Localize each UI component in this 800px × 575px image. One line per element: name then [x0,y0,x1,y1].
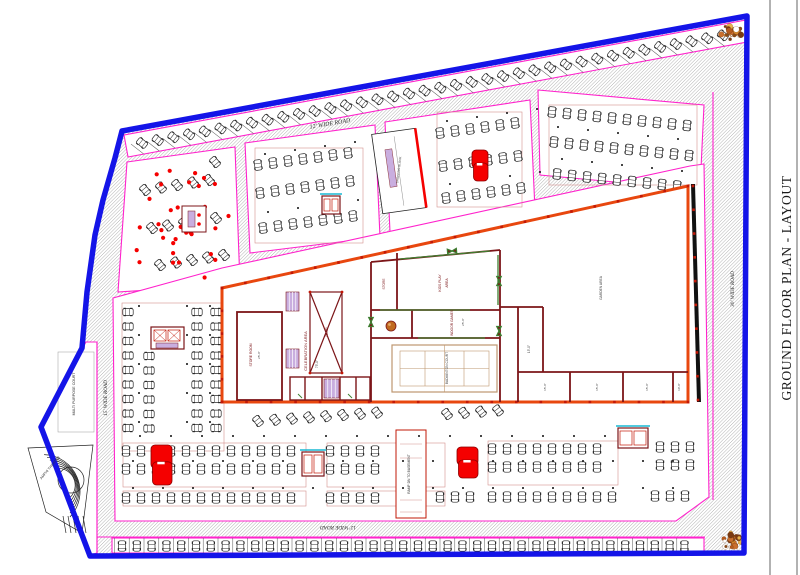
column-dot [357,199,359,201]
car-icon [480,121,490,132]
car-wheel [204,453,205,456]
car-icon [212,493,220,503]
car-wheel [673,492,674,495]
car-wheel [495,451,496,454]
car-wheel [663,461,664,464]
car-body [258,446,265,456]
car-wheel [355,548,356,551]
car-wheel [137,494,138,497]
car-body [489,541,496,551]
car-wheel [130,424,133,425]
car-wheel [540,499,541,502]
car-wheel [555,469,556,472]
car-icon [253,159,263,170]
car-wheel [288,542,289,545]
column-dot [522,487,524,489]
car-icon [152,493,160,503]
round-table-highlight [388,323,391,326]
car-icon [341,464,349,474]
car-wheel [221,548,222,551]
car-icon [123,308,133,316]
car-body [228,446,235,456]
car-wheel [570,469,571,472]
shrub-dot [138,225,142,229]
car-wheel [197,471,198,474]
car-wheel [130,359,133,360]
car-body [504,492,511,502]
car-wheel [600,493,601,496]
column-tick [694,304,697,307]
car-body [326,541,333,551]
car-wheel [451,542,452,545]
label-celebration-area: CELEBRATION AREA [303,331,308,371]
car-body [213,493,220,503]
car-body [682,491,689,501]
label-shop-dim-2: 15'-0" [595,383,599,391]
car-wheel [137,471,138,474]
car-icon [652,117,661,128]
car-icon [144,395,154,403]
car-wheel [288,548,289,551]
car-wheel [152,500,153,503]
car-icon [488,492,496,502]
car-wheel [242,494,243,497]
car-icon [144,410,154,418]
car-wheel [218,330,221,331]
car-wheel [510,542,511,545]
car-wheel [199,351,202,352]
car-body [163,541,170,551]
car-wheel [273,542,274,545]
car-wheel [257,465,258,468]
car-body [211,381,221,388]
red-core-notch [157,462,164,465]
car-icon [341,446,349,456]
car-wheel [348,500,349,503]
car-wheel [212,431,215,432]
stair-core-west [151,445,172,485]
car-wheel [421,542,422,545]
car-wheel [199,542,200,545]
car-wheel [212,373,215,374]
car-icon [123,337,133,345]
car-wheel [325,542,326,545]
car-wheel [348,447,349,450]
car-wheel [495,493,496,496]
car-icon [270,185,280,196]
car-wheel [451,499,452,502]
car-wheel [219,453,220,456]
car-wheel [548,493,549,496]
car-wheel [218,322,221,323]
car-wheel [533,499,534,502]
car-wheel [688,548,689,551]
car-wheel [347,548,348,551]
label-multi-purpose-court: MULTI PURPOSE COURT [72,372,76,416]
column-tick [640,195,643,198]
parking-row-p6-r1-d [656,442,694,452]
car-wheel [693,467,694,470]
car-wheel [193,330,196,331]
car-wheel [124,366,127,367]
column-tick [221,378,224,381]
shrub-dot [168,169,172,173]
parcel-parking-2 [245,125,380,253]
car-wheel [199,388,202,389]
car-wheel [371,494,372,497]
car-wheel [151,424,154,425]
column-dot [222,487,224,489]
car-wheel [341,453,342,456]
car-wheel [503,469,504,472]
p5-core-lavender [156,343,178,348]
car-body [243,464,250,474]
car-wheel [229,542,230,545]
car-wheel [218,359,221,360]
label-store-small: STORE [382,279,386,290]
column-dot [297,207,299,209]
car-wheel [495,463,496,466]
car-icon [639,145,648,156]
car-wheel [266,548,267,551]
tree-foliage [719,32,725,38]
car-body [652,491,659,501]
car-wheel [272,447,273,450]
car-body [564,444,571,454]
car-body [123,338,133,345]
car-wheel [495,499,496,502]
car-wheel [443,548,444,551]
car-wheel [554,542,555,545]
car-wheel [378,447,379,450]
car-wheel [242,471,243,474]
car-wheel [421,548,422,551]
lift-core-south-east [616,426,650,448]
car-wheel [212,359,215,360]
car-wheel [606,548,607,551]
column-dot [476,116,478,118]
car-wheel [510,469,511,472]
car-wheel [533,451,534,454]
car-wheel [124,315,127,316]
car-wheel [124,417,127,418]
car-body [123,309,133,316]
car-icon [227,446,235,456]
car-wheel [137,465,138,468]
car-body [198,464,205,474]
car-icon [272,464,280,474]
car-wheel [563,463,564,466]
label-corridor-dim: 15'-0" [527,345,531,353]
car-icon [503,444,511,454]
car-wheel [130,351,133,352]
car-wheel [533,463,534,466]
car-wheel [212,395,215,396]
car-icon [192,424,202,432]
car-icon [211,395,221,403]
column-dot [282,487,284,489]
column-dot [186,421,188,423]
car-wheel [272,465,273,468]
column-dot [492,460,494,462]
car-body [549,462,556,472]
car-wheel [279,447,280,450]
car-wheel [688,492,689,495]
car-wheel [236,542,237,545]
car-body [123,425,133,432]
car-icon [549,136,558,147]
car-wheel [591,548,592,551]
car-wheel [234,453,235,456]
car-wheel [503,493,504,496]
car-wheel [473,499,474,502]
car-wheel [658,548,659,551]
car-icon [192,380,202,388]
car-icon [582,171,591,182]
car-wheel [636,548,637,551]
car-icon [654,147,663,158]
car-wheel [563,493,564,496]
column-tick [540,401,543,404]
car-wheel [686,467,687,470]
car-body [123,381,133,388]
car-wheel [133,542,134,545]
car-body [370,541,377,551]
column-dot [170,435,172,437]
car-body [273,464,280,474]
car-body [296,541,303,551]
car-body [519,492,526,502]
car-body [437,492,444,502]
car-wheel [673,542,674,545]
car-wheel [525,542,526,545]
column-dot [677,138,679,140]
column-dot [387,435,389,437]
car-icon [563,492,571,502]
car-body [372,493,379,503]
car-wheel [578,469,579,472]
car-wheel [264,471,265,474]
car-icon [137,493,145,503]
window-strip [324,379,339,398]
car-body [385,541,392,551]
car-body [564,462,571,472]
car-wheel [666,498,667,501]
car-wheel [384,548,385,551]
shrub-dot [193,171,197,175]
column-tick [693,232,696,235]
car-wheel [257,500,258,503]
car-body [288,446,295,456]
column-dot [642,487,644,489]
shrub-dot [203,275,207,279]
car-wheel [273,548,274,551]
car-icon [211,380,221,388]
car-wheel [347,542,348,545]
car-wheel [488,542,489,545]
car-body [342,446,349,456]
car-icon [371,446,379,456]
car-icon [666,491,674,501]
car-wheel [355,542,356,545]
car-wheel [510,445,511,448]
car-body [594,492,601,502]
column-dot [604,435,606,437]
car-wheel [643,548,644,551]
car-wheel [212,417,215,418]
car-wheel [503,499,504,502]
car-wheel [294,471,295,474]
car-wheel [130,315,133,316]
car-wheel [577,548,578,551]
car-wheel [204,500,205,503]
car-body [563,541,570,551]
car-wheel [130,402,133,403]
column-dot [222,460,224,462]
car-wheel [569,542,570,545]
car-wheel [124,359,127,360]
car-wheel [510,493,511,496]
parking-row-p6-r3-c [436,492,474,502]
car-wheel [145,388,148,389]
car-icon [510,117,520,128]
car-wheel [174,453,175,456]
car-body [327,446,334,456]
car-wheel [144,471,145,474]
car-icon [341,493,349,503]
column-tick [407,246,410,249]
car-wheel [145,432,148,433]
car-icon [300,181,310,192]
car-wheel [585,469,586,472]
car-wheel [326,500,327,503]
car-wheel [443,499,444,502]
car-body [681,541,688,551]
column-dot [138,392,140,394]
column-dot [509,175,511,177]
car-wheel [414,548,415,551]
car-wheel [578,445,579,448]
shrub-dot [226,214,230,218]
car-wheel [144,465,145,468]
car-icon [503,462,511,472]
ramp-corner-dot [341,291,344,294]
car-wheel [673,548,674,551]
car-icon [518,444,526,454]
column-dot [591,161,593,163]
car-wheel [244,542,245,545]
car-body [519,444,526,454]
column-tick [319,401,322,404]
car-wheel [378,494,379,497]
car-wheel [569,548,570,551]
car-wheel [219,500,220,503]
car-wheel [218,366,221,367]
car-wheel [193,351,196,352]
car-icon [123,395,133,403]
label-road-bottom: 12' WIDE ROAD [320,524,356,530]
car-wheel [369,542,370,545]
column-dot [372,460,374,462]
car-wheel [341,465,342,468]
car-wheel [488,463,489,466]
car-wheel [193,322,196,323]
car-wheel [363,465,364,468]
column-dot [432,460,434,462]
car-wheel [554,548,555,551]
car-body [504,444,511,454]
column-dot [511,435,513,437]
car-wheel [124,330,127,331]
car-icon [578,444,586,454]
car-icon [597,173,606,184]
car-wheel [503,445,504,448]
car-body [594,444,601,454]
car-wheel [458,499,459,502]
car-icon [192,366,202,374]
car-wheel [356,447,357,450]
car-wheel [219,471,220,474]
car-wheel [443,493,444,496]
car-body [666,541,673,551]
car-wheel [242,500,243,503]
window-strip [286,292,299,311]
car-wheel [621,548,622,551]
car-wheel [212,447,213,450]
car-wheel [658,492,659,495]
shrub-dot [161,236,165,240]
column-tick [221,355,224,358]
column-dot [522,460,524,462]
car-wheel [184,542,185,545]
car-wheel [585,499,586,502]
car-body [459,541,466,551]
car-wheel [310,548,311,551]
car-body [138,446,145,456]
car-wheel [145,403,148,404]
car-wheel [332,542,333,545]
car-wheel [555,451,556,454]
car-wheel [488,445,489,448]
car-icon [345,175,355,186]
car-wheel [332,548,333,551]
car-wheel [182,465,183,468]
car-wheel [251,548,252,551]
car-icon [371,464,379,474]
car-icon [137,446,145,456]
car-body [153,493,160,503]
car-icon [671,442,679,452]
car-wheel [578,499,579,502]
car-wheel [570,463,571,466]
car-wheel [326,453,327,456]
car-body [564,492,571,502]
car-wheel [249,447,250,450]
car-wheel [678,467,679,470]
car-wheel [197,465,198,468]
car-wheel [212,337,215,338]
car-wheel [193,315,196,316]
car-icon [211,337,221,345]
car-body [192,410,202,417]
car-wheel [162,548,163,551]
parking-row-p5-col-d [211,308,221,432]
car-wheel [193,417,196,418]
car-wheel [122,453,123,456]
car-wheel [182,453,183,456]
car-body [148,541,155,551]
car-wheel [578,463,579,466]
